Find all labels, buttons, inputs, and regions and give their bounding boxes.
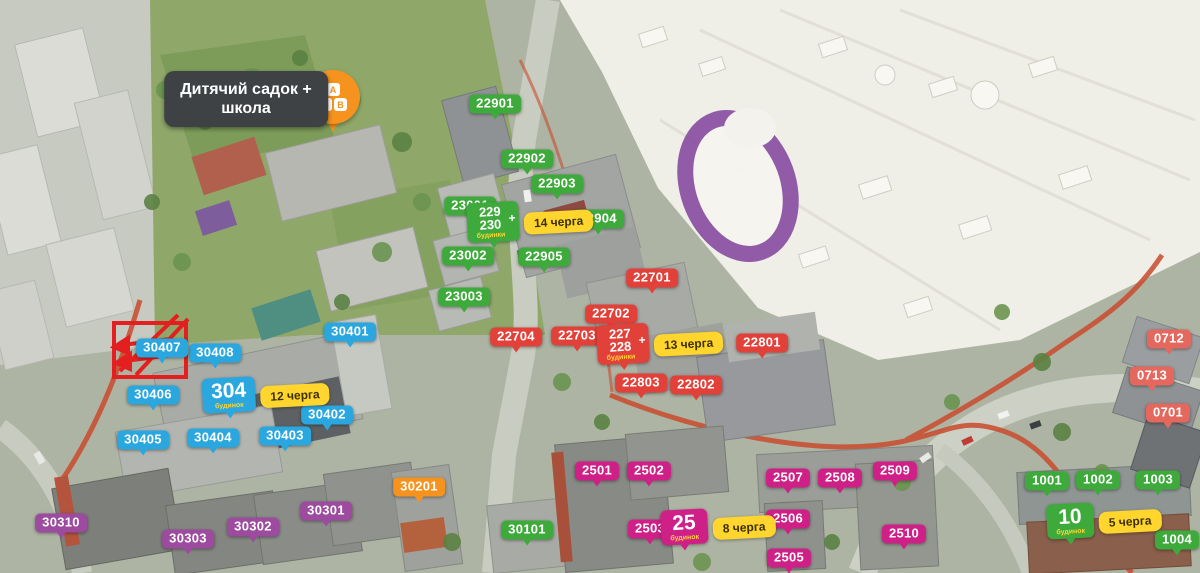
building-number: 2505 <box>774 550 804 565</box>
phase-building-number: 304 <box>211 380 247 403</box>
label-pointer <box>835 487 845 494</box>
phase-callout-12-черга: 304будинок12 черга <box>202 378 329 413</box>
building-label-22704[interactable]: 22704 <box>490 328 542 347</box>
phase-subtext: будинок <box>670 534 699 543</box>
building-label-2501[interactable]: 2501 <box>575 462 619 481</box>
label-pointer <box>489 241 499 249</box>
building-number: 30101 <box>508 522 546 537</box>
plus-sign: + <box>508 211 516 225</box>
building-number: 0712 <box>1154 331 1184 346</box>
building-label-22902[interactable]: 22902 <box>501 150 553 169</box>
building-number: 22701 <box>633 270 671 285</box>
label-pointer <box>757 352 767 359</box>
label-pointer <box>592 480 602 487</box>
phase-subtext: будинок <box>212 402 247 412</box>
building-number: 30301 <box>307 503 345 518</box>
phase-building-number: 230 <box>476 217 505 231</box>
label-pointer <box>522 168 532 175</box>
building-number: 1003 <box>1143 472 1173 487</box>
plus-sign: + <box>638 333 646 347</box>
building-label-30404[interactable]: 30404 <box>187 429 239 448</box>
building-number: 2506 <box>773 511 803 526</box>
label-pointer <box>1066 537 1076 545</box>
phase-callout-5-черга: 10будинок5 черга <box>1047 504 1161 539</box>
label-pointer <box>680 543 690 551</box>
building-label-23002[interactable]: 23002 <box>442 247 494 266</box>
building-number: 22703 <box>558 328 596 343</box>
phase-building-number: 10 <box>1055 506 1085 528</box>
building-number: 22905 <box>525 249 563 264</box>
building-label-22901[interactable]: 22901 <box>469 95 521 114</box>
building-label-0713[interactable]: 0713 <box>1130 367 1174 386</box>
label-pointer <box>511 346 521 353</box>
building-label-1001[interactable]: 1001 <box>1025 472 1069 491</box>
label-pointer <box>783 487 793 494</box>
building-label-22701[interactable]: 22701 <box>626 269 678 288</box>
label-pointer <box>1163 422 1173 429</box>
building-label-30301[interactable]: 30301 <box>300 502 352 521</box>
building-label-2507[interactable]: 2507 <box>766 469 810 488</box>
label-pointer <box>138 449 148 456</box>
label-pointer <box>183 548 193 555</box>
building-number: 22702 <box>592 306 630 321</box>
phase-buildings-label[interactable]: 304будинок <box>201 376 256 414</box>
building-number: 30405 <box>124 432 162 447</box>
label-pointer <box>539 266 549 273</box>
label-pointer <box>619 363 629 371</box>
building-number: 2507 <box>773 470 803 485</box>
phase-callout-14-черга: 229230+будинки14 черга <box>467 202 593 242</box>
building-number: 2501 <box>582 463 612 478</box>
phase-chip[interactable]: 14 черга <box>523 209 593 235</box>
building-number: 30406 <box>134 387 172 402</box>
building-number: 2508 <box>825 470 855 485</box>
building-label-30303[interactable]: 30303 <box>162 530 214 549</box>
label-pointer <box>157 357 167 364</box>
label-pointer <box>490 113 500 120</box>
label-pointer <box>248 536 258 543</box>
building-number: 1001 <box>1032 473 1062 488</box>
label-pointer <box>322 424 332 431</box>
phase-chip[interactable]: 12 черга <box>260 382 330 408</box>
phase-building-number: 25 <box>669 512 699 534</box>
label-pointer <box>1172 549 1182 556</box>
building-label-30302[interactable]: 30302 <box>227 518 279 537</box>
building-label-30201[interactable]: 30201 <box>393 478 445 497</box>
label-pointer <box>572 345 582 352</box>
building-number: 30302 <box>234 519 272 534</box>
building-number: 1004 <box>1162 532 1192 547</box>
building-label-30403[interactable]: 30403 <box>259 427 311 446</box>
building-label-2510[interactable]: 2510 <box>882 525 926 544</box>
building-number: 22901 <box>476 96 514 111</box>
building-label-2505[interactable]: 2505 <box>767 549 811 568</box>
building-label-22905[interactable]: 22905 <box>518 248 570 267</box>
label-pointer <box>691 394 701 401</box>
phase-chip[interactable]: 5 черга <box>1098 508 1162 533</box>
label-pointer <box>1042 490 1052 497</box>
building-label-22801[interactable]: 22801 <box>736 334 788 353</box>
building-number: 0701 <box>1153 405 1183 420</box>
building-label-2509[interactable]: 2509 <box>873 462 917 481</box>
label-pointer <box>645 538 655 545</box>
label-pointer <box>784 567 794 573</box>
building-number: 0713 <box>1137 368 1167 383</box>
building-number: 30310 <box>42 515 80 530</box>
phase-buildings-label[interactable]: 10будинок <box>1046 502 1094 539</box>
building-number: 1002 <box>1083 472 1113 487</box>
building-number: 22902 <box>508 151 546 166</box>
label-pointer <box>56 532 66 539</box>
label-pointer <box>225 411 235 419</box>
label-pointer <box>414 496 424 503</box>
building-label-30407[interactable]: 30407 <box>136 339 188 358</box>
school-callout-line1: Дитячий садок + <box>180 80 312 99</box>
label-pointer <box>552 193 562 200</box>
label-pointer <box>783 528 793 535</box>
building-number: 30401 <box>331 324 369 339</box>
label-pointer <box>890 480 900 487</box>
building-number: 30404 <box>194 430 232 445</box>
school-callout-line2: школа <box>180 99 312 118</box>
phase-buildings-label[interactable]: 229230+будинки <box>466 201 520 244</box>
label-pointer <box>208 447 218 454</box>
phase-callout-13-черга: 227228+будинки13 черга <box>597 324 723 364</box>
phase-subtext: будинок <box>1056 528 1085 537</box>
building-label-22703[interactable]: 22703 <box>551 327 603 346</box>
building-label-1002[interactable]: 1002 <box>1076 471 1120 490</box>
building-label-22903[interactable]: 22903 <box>531 175 583 194</box>
building-number: 23002 <box>449 248 487 263</box>
label-pointer <box>459 306 469 313</box>
phase-subtext: будинки <box>607 353 636 362</box>
building-number: 22802 <box>677 377 715 392</box>
school-callout[interactable]: Дитячий садок + школа <box>164 71 328 127</box>
building-number: 22803 <box>622 375 660 390</box>
label-pointer <box>522 539 532 546</box>
label-pointer <box>210 362 220 369</box>
building-label-30310[interactable]: 30310 <box>35 514 87 533</box>
label-pointer <box>463 265 473 272</box>
phase-buildings-label[interactable]: 227228+будинки <box>596 323 650 366</box>
building-number: 30408 <box>196 345 234 360</box>
phase-chip[interactable]: 13 черга <box>653 331 723 357</box>
label-pointer <box>593 228 603 235</box>
building-label-22803[interactable]: 22803 <box>615 374 667 393</box>
label-pointer <box>636 392 646 399</box>
building-label-1004[interactable]: 1004 <box>1155 531 1199 550</box>
phase-chip[interactable]: 8 черга <box>712 514 776 539</box>
label-pointer <box>345 341 355 348</box>
label-pointer <box>647 287 657 294</box>
label-pointer <box>1147 385 1157 392</box>
masterplan-map: А Б В Дитячий садок + школа 229012290222… <box>0 0 1200 573</box>
phase-subtext: будинки <box>477 231 506 240</box>
building-label-0701[interactable]: 0701 <box>1146 404 1190 423</box>
building-label-30401[interactable]: 30401 <box>324 323 376 342</box>
label-pointer <box>899 543 909 550</box>
label-pointer <box>321 520 331 527</box>
building-label-30408[interactable]: 30408 <box>189 344 241 363</box>
label-pointer <box>1153 489 1163 496</box>
building-label-22802[interactable]: 22802 <box>670 376 722 395</box>
phase-building-number: 228 <box>606 339 635 353</box>
building-number: 23003 <box>445 289 483 304</box>
building-label-30406[interactable]: 30406 <box>127 386 179 405</box>
building-label-30405[interactable]: 30405 <box>117 431 169 450</box>
block-letter-a: А <box>327 83 340 96</box>
building-number: 30303 <box>169 531 207 546</box>
building-number: 22801 <box>743 335 781 350</box>
building-label-2502[interactable]: 2502 <box>627 462 671 481</box>
building-number: 22704 <box>497 329 535 344</box>
phase-callout-8-черга: 25будинок8 черга <box>661 510 775 545</box>
building-label-2508[interactable]: 2508 <box>818 469 862 488</box>
label-pointer <box>1093 489 1103 496</box>
building-label-22702[interactable]: 22702 <box>585 305 637 324</box>
building-label-23003[interactable]: 23003 <box>438 288 490 307</box>
building-number: 30201 <box>400 479 438 494</box>
building-label-0712[interactable]: 0712 <box>1147 330 1191 349</box>
building-number: 30407 <box>143 340 181 355</box>
building-number: 2510 <box>889 526 919 541</box>
building-number: 30403 <box>266 428 304 443</box>
building-number: 2509 <box>880 463 910 478</box>
label-pointer <box>644 480 654 487</box>
building-number: 2502 <box>634 463 664 478</box>
label-pointer <box>148 404 158 411</box>
building-number: 22903 <box>538 176 576 191</box>
building-label-1003[interactable]: 1003 <box>1136 471 1180 490</box>
phase-buildings-label[interactable]: 25будинок <box>660 508 708 545</box>
label-pointer <box>280 445 290 452</box>
block-letter-v: В <box>334 98 347 111</box>
building-label-30101[interactable]: 30101 <box>501 521 553 540</box>
label-pointer <box>1164 348 1174 355</box>
